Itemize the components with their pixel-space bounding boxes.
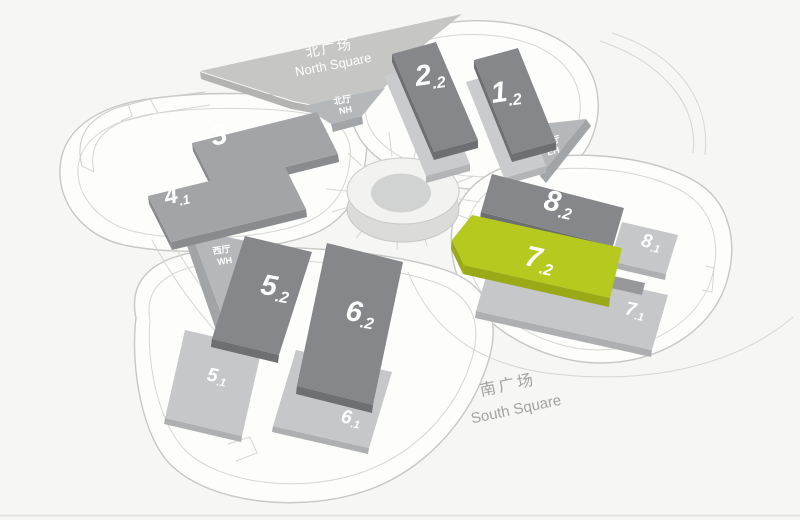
venue-map-stage: 北广场 North Square 北厅 NH 东厅 EH 西厅 WH 2.2 — [0, 0, 800, 520]
central-ring-hole — [371, 174, 431, 213]
west-hall-label-en: WH — [216, 255, 232, 267]
venue-map: 北广场 North Square 北厅 NH 东厅 EH 西厅 WH 2.2 — [0, 0, 800, 520]
